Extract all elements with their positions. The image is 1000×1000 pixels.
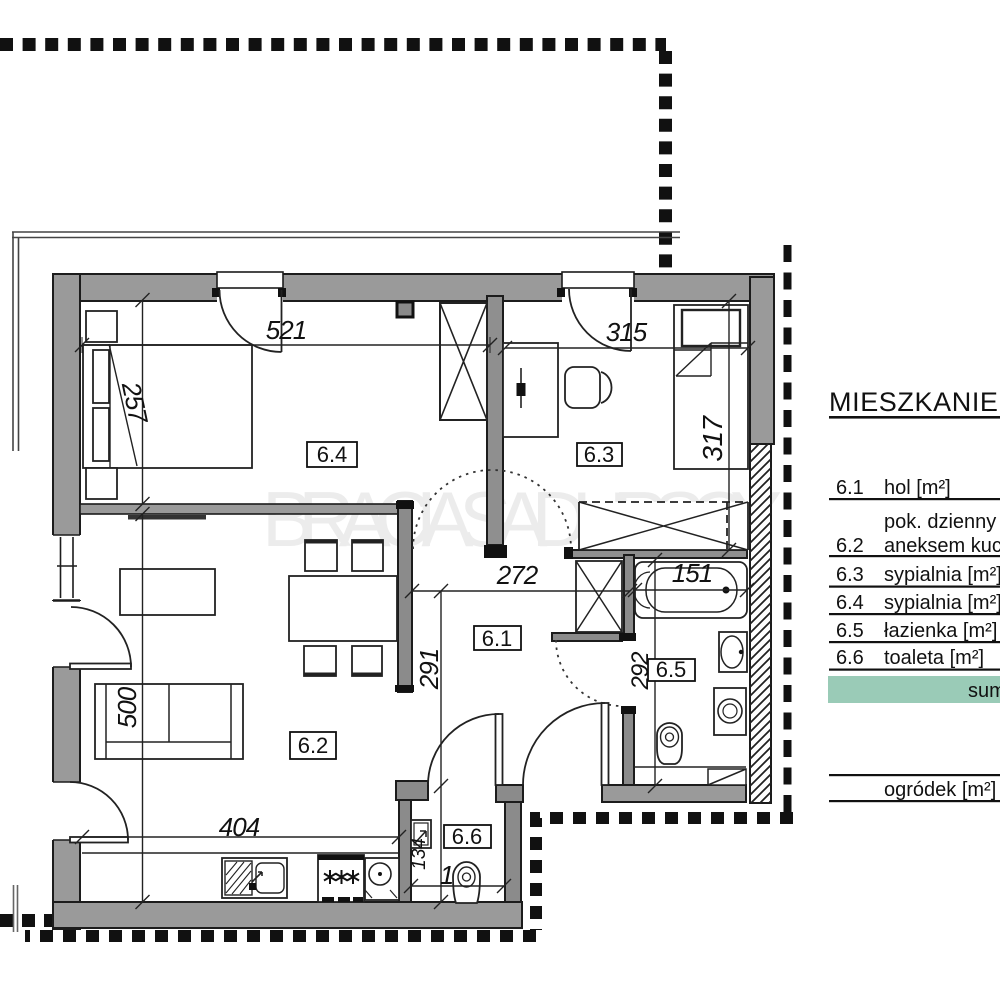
svg-text:6.4: 6.4 bbox=[836, 592, 864, 614]
svg-text:272: 272 bbox=[496, 560, 539, 590]
svg-text:6.3: 6.3 bbox=[584, 442, 615, 467]
svg-text:6.6: 6.6 bbox=[452, 824, 483, 849]
svg-text:hol [m²]: hol [m²] bbox=[884, 477, 951, 499]
svg-text:151: 151 bbox=[672, 558, 712, 588]
svg-text:500: 500 bbox=[112, 686, 142, 728]
svg-text:315: 315 bbox=[606, 317, 648, 347]
svg-text:łazienka [m²]: łazienka [m²] bbox=[884, 620, 997, 642]
svg-text:6.1: 6.1 bbox=[836, 477, 864, 499]
svg-text:pok. dzienny z: pok. dzienny z bbox=[884, 511, 1000, 533]
svg-text:ogródek [m²]: ogródek [m²] bbox=[884, 779, 996, 801]
svg-text:6.2: 6.2 bbox=[836, 535, 864, 557]
svg-text:291: 291 bbox=[414, 649, 444, 690]
svg-text:6.4: 6.4 bbox=[317, 442, 348, 467]
svg-text:6.2: 6.2 bbox=[298, 733, 329, 758]
svg-text:6.5: 6.5 bbox=[656, 657, 687, 682]
svg-text:6.5: 6.5 bbox=[836, 620, 864, 642]
svg-text:6.1: 6.1 bbox=[482, 626, 513, 651]
svg-text:521: 521 bbox=[266, 315, 306, 345]
svg-text:1: 1 bbox=[440, 860, 454, 890]
svg-text:aneksem kuchennym: aneksem kuchennym bbox=[884, 535, 1000, 557]
svg-text:6.3: 6.3 bbox=[836, 564, 864, 586]
svg-text:suma: suma bbox=[968, 680, 1000, 702]
svg-text:317: 317 bbox=[697, 414, 728, 461]
svg-text:404: 404 bbox=[219, 812, 260, 842]
svg-text:6.6: 6.6 bbox=[836, 647, 864, 669]
svg-text:134: 134 bbox=[409, 838, 430, 870]
svg-text:toaleta [m²]: toaleta [m²] bbox=[884, 647, 984, 669]
svg-text:sypialnia [m²]: sypialnia [m²] bbox=[884, 564, 1000, 586]
svg-text:sypialnia [m²]: sypialnia [m²] bbox=[884, 592, 1000, 614]
svg-text:MIESZKANIE 6: MIESZKANIE 6 bbox=[829, 387, 1000, 417]
